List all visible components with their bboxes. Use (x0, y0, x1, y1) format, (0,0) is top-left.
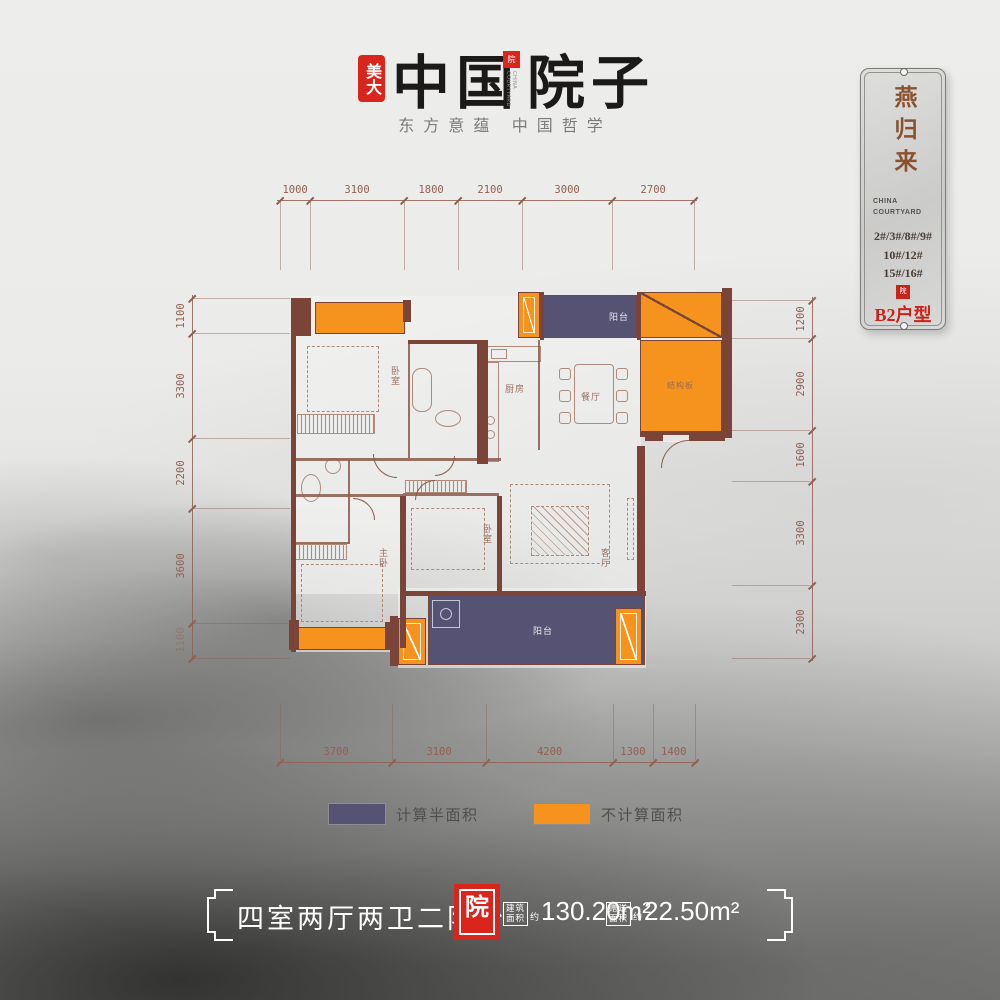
dim-ext (486, 704, 487, 760)
dim-ext (392, 704, 393, 760)
plaque-seal-icon: 院 (896, 285, 910, 299)
chair (616, 390, 628, 402)
dim-value-right-2300: 2300 (795, 609, 807, 634)
metric-box: 赠送 面积 (606, 902, 631, 926)
approx-label: 约 (633, 910, 642, 923)
brand-seal: 美大 (358, 55, 385, 102)
metric-box-line2: 面积 (506, 914, 525, 924)
w (408, 340, 480, 344)
wardrobe-top-left (297, 414, 375, 434)
room-label-bedroom-mid: 卧室 (481, 524, 494, 544)
dim-ext (732, 585, 810, 586)
dim-ext (732, 481, 810, 482)
dim-value-top-1800: 1800 (418, 184, 443, 196)
building-line1: 2#/3#/8#/9# (861, 227, 945, 246)
legend-half-area: 计算半面积 (328, 803, 479, 825)
dim-ext (194, 508, 290, 509)
dim-value-left-2200: 2200 (175, 461, 187, 486)
orange-deck-top-right (640, 292, 722, 338)
w (637, 292, 641, 340)
ac-platform-right (615, 608, 642, 665)
p (293, 542, 349, 544)
dim-line (192, 295, 193, 661)
room-label-structure-slab: 结构板 (667, 380, 694, 391)
dim-value-bottom-4200: 4200 (537, 746, 562, 758)
tv-cabinet (627, 498, 634, 560)
entry-door-arc (661, 440, 689, 468)
bed-master (301, 564, 383, 622)
metric-box: 建筑 面积 (503, 902, 528, 926)
chair (559, 390, 571, 402)
building-line2: 10#/12# (861, 246, 945, 265)
w (403, 300, 411, 322)
mini-seal-icon: 院 (503, 51, 520, 68)
cabinet-bath2 (295, 544, 347, 560)
washing-machine (432, 600, 460, 628)
dim-value-top-2100: 2100 (477, 184, 502, 196)
unit-type-label: B2户型 (861, 301, 945, 327)
w (390, 616, 398, 666)
dim-ext (310, 202, 311, 270)
metric-box-line2: 面积 (609, 914, 628, 924)
dim-ext (194, 658, 290, 659)
w (637, 446, 645, 596)
basin-bath1 (435, 410, 461, 427)
dim-value-bottom-3700: 3700 (323, 746, 348, 758)
bay-window-master (295, 627, 390, 650)
dim-ext (280, 704, 281, 760)
gift-area-value: 22.50m² (644, 896, 739, 927)
[object (208, 890, 233, 940)
chair (559, 368, 571, 380)
room-label-balcony-top: 阳台 (609, 310, 629, 323)
p (538, 340, 540, 450)
plaque-caption: CHINA COURTYARD (873, 197, 922, 218)
dim-value-top-1000: 1000 (282, 184, 307, 196)
legend-label-orange: 不计算面积 (601, 804, 684, 825)
toilet (301, 474, 321, 502)
dim-line (277, 200, 697, 201)
metric-gift-area: 赠送 面积 约 22.50m² (606, 896, 739, 927)
living-rug (531, 506, 589, 556)
dim-value-left-1100: 1100 (175, 303, 187, 328)
dim-value-top-3000: 3000 (554, 184, 579, 196)
dim-value-top-3100: 3100 (344, 184, 369, 196)
ac-platform-top (518, 292, 540, 338)
dim-ext (194, 333, 290, 334)
w (722, 288, 732, 438)
room-label-dining: 餐厅 (581, 390, 601, 403)
room-label-living: 客厅 (599, 548, 612, 568)
subtitle: 东方意蕴 中国哲学 (340, 112, 670, 136)
title-courtyard: 院子 (527, 36, 655, 120)
dim-value-bottom-1400: 1400 (661, 746, 686, 758)
bed-top-left (307, 346, 379, 412)
dim-ext (194, 623, 290, 624)
bathtub (412, 368, 432, 412)
p (293, 494, 403, 497)
room-label-kitchen: 厨房 (505, 382, 525, 395)
dim-ext (732, 430, 810, 431)
dim-ext (695, 704, 696, 760)
dim-ext (194, 298, 290, 299)
unit-plaque: 燕归来 CHINA COURTYARD 2#/3#/8#/9# 10#/12# … (860, 68, 946, 330)
floorplan-canvas: 卧室 厨房 餐厅 阳台 结构板 主卧 卧室 客厅 阳台 (285, 288, 745, 668)
chair (559, 412, 571, 424)
bay-window-top-left (315, 302, 405, 334)
legend-not-counted: 不计算面积 (533, 803, 684, 825)
dim-value-right-2900: 2900 (795, 371, 807, 396)
poster-canvas: 美大 中国 院 CHINA COURTYARD 院子 东方意蕴 中国哲学 燕归来… (0, 0, 1000, 1000)
dim-ext (194, 438, 290, 439)
dim-value-top-2700: 2700 (641, 184, 666, 196)
bed-mid (411, 508, 485, 570)
w (291, 298, 296, 652)
[object (767, 890, 792, 940)
plaque-name: 燕归来 (886, 85, 920, 181)
dim-ext (458, 202, 459, 270)
w (497, 496, 502, 595)
dim-value-left-3600: 3600 (175, 553, 187, 578)
plaque-caption-line2: COURTYARD (873, 208, 922, 219)
legend-swatch-blue (328, 803, 386, 825)
wardrobe-mid-bedroom (405, 480, 467, 493)
room-label-master: 主卧 (377, 548, 390, 568)
legend-label-blue: 计算半面积 (396, 804, 479, 825)
building-line3: 15#/16# (861, 264, 945, 283)
p (408, 344, 410, 458)
dim-ext (612, 202, 613, 270)
title-china: 中国 (392, 36, 520, 120)
dim-ext (732, 658, 810, 659)
footer-seal: 院 (454, 884, 500, 940)
dim-ext (522, 202, 523, 270)
plaque-caption-line1: CHINA (873, 197, 922, 208)
w (403, 591, 646, 596)
p (348, 460, 350, 544)
dim-ext (653, 704, 654, 760)
dim-value-left-3300: 3300 (175, 373, 187, 398)
dim-ext (694, 202, 695, 270)
dim-ext (613, 704, 614, 760)
building-numbers: 2#/3#/8#/9# 10#/12# 15#/16# (861, 227, 945, 283)
dim-value-right-1200: 1200 (795, 306, 807, 331)
dim-ext (732, 338, 810, 339)
w (477, 340, 488, 464)
footer-seal-glyph: 院 (459, 889, 495, 935)
w (289, 620, 299, 650)
room-label-bedroom-top: 卧室 (389, 366, 402, 386)
dim-value-right-1600: 1600 (795, 443, 807, 468)
dim-value-bottom-1300: 1300 (620, 746, 645, 758)
approx-label: 约 (530, 910, 539, 923)
room-label-balcony-bottom: 阳台 (533, 624, 553, 637)
dim-value-bottom-3100: 3100 (426, 746, 451, 758)
dim-ext (280, 202, 281, 270)
plaque-knob-top (900, 68, 908, 76)
chair (616, 368, 628, 380)
legend-swatch-orange (533, 803, 591, 825)
w (400, 496, 406, 648)
w (540, 292, 544, 340)
p (293, 458, 501, 461)
dim-value-left-1100: 1100 (175, 628, 187, 653)
chair (616, 412, 628, 424)
dim-value-right-3300: 3300 (795, 520, 807, 545)
dim-ext (404, 202, 405, 270)
dim-ext (732, 300, 810, 301)
kitchen-sink (491, 349, 507, 359)
